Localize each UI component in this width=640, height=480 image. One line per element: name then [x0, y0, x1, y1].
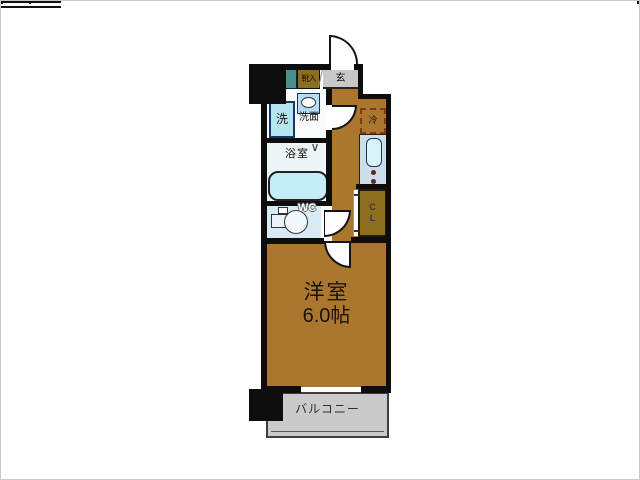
wall [326, 89, 332, 105]
wall [351, 237, 391, 243]
main-room-size: 6.0帖 [303, 305, 351, 327]
wall [386, 94, 391, 393]
wall [358, 64, 363, 96]
washroom-label: 洗面 [292, 111, 326, 124]
laundry-label: 洗 [269, 101, 295, 138]
window-tick [29, 1, 31, 4]
refrigerator-label: 冷 [360, 108, 386, 134]
entrance-door-arc [329, 35, 358, 64]
door-handle-mark [354, 230, 359, 232]
burner-dot [371, 170, 376, 175]
entrance-label: 玄 [323, 70, 358, 87]
wc-label: WC [292, 202, 322, 215]
closet-label-line2: L [370, 213, 376, 224]
kitchen-sink [366, 138, 382, 167]
window-tick [1, 1, 3, 4]
wall [261, 238, 324, 244]
washbasin-bowl [301, 97, 316, 108]
mirror-cabinet [285, 69, 297, 89]
wall [361, 386, 391, 393]
bath-door-marker: ∨ [308, 141, 322, 155]
balcony-window [1, 1, 61, 8]
wall [356, 184, 391, 189]
shoe-storage-label: 靴入 [297, 70, 320, 88]
wall [249, 66, 286, 104]
kitchen-counter [359, 134, 387, 187]
closet-label: C L [358, 196, 387, 230]
balcony-edge-line [271, 431, 384, 432]
balcony-label: バルコニー [266, 400, 389, 420]
window-tick [637, 1, 639, 4]
main-room-name: 洋室 [304, 281, 350, 304]
floor-plan: 玄 靴入 洗面 洗 浴室 WC 冷 C L ∨ 洋室 6.0帖 バルコニー [0, 0, 640, 480]
closet-label-line1: C [369, 202, 376, 213]
bathtub [268, 171, 328, 201]
main-room-label: 洋室 6.0帖 [267, 278, 386, 330]
